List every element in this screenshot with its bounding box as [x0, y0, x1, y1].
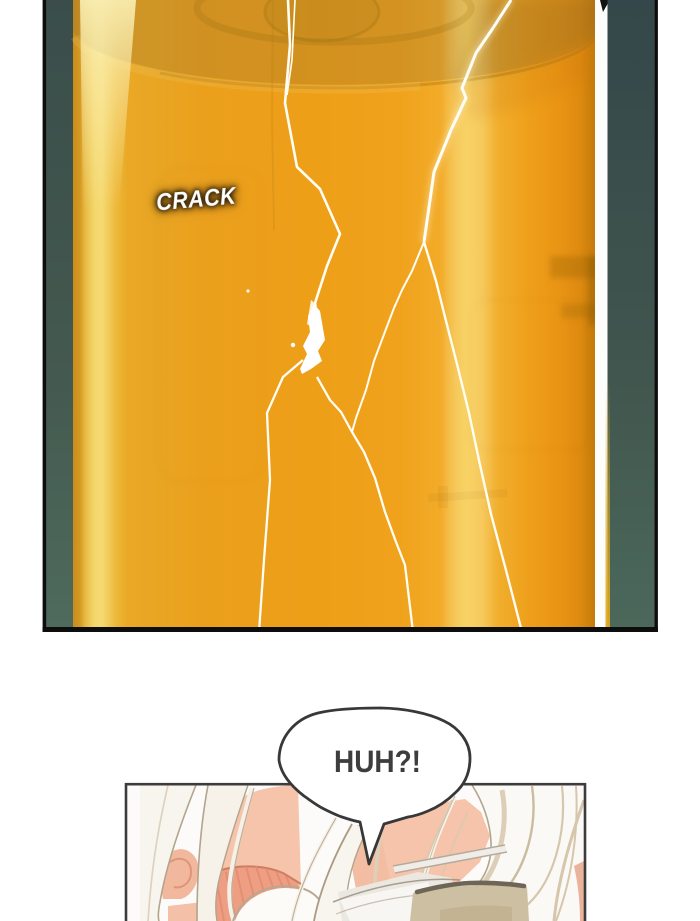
svg-text:HUH?!: HUH?!	[334, 744, 421, 779]
